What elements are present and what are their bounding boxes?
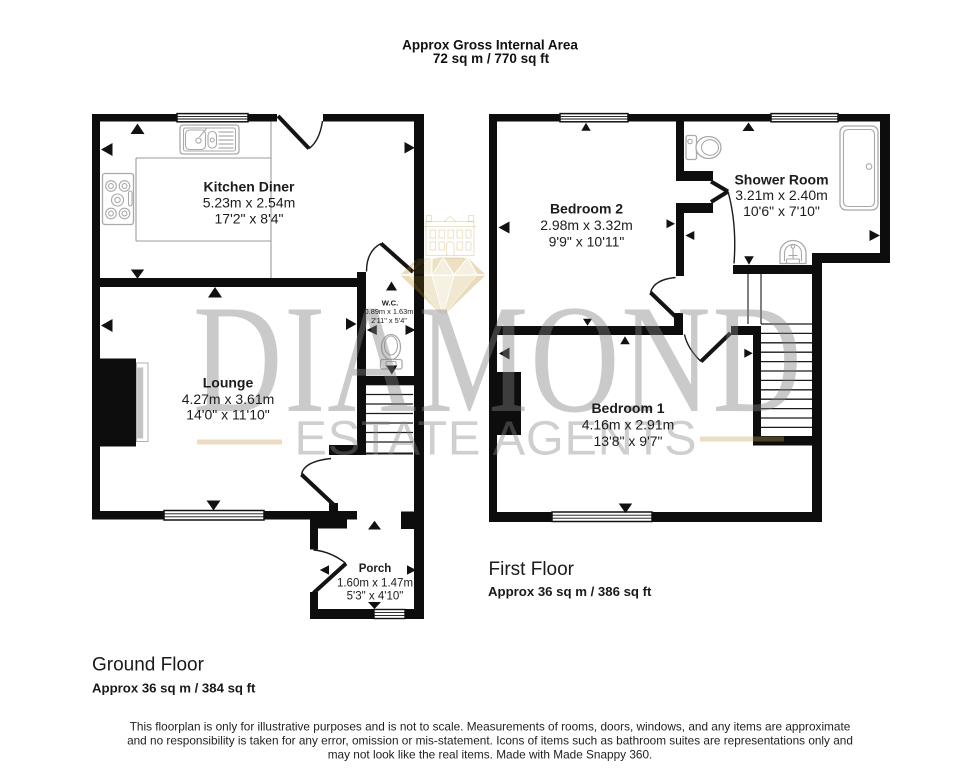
svg-text:Ground Floor: Ground Floor [92,655,205,676]
svg-text:First Floor: First Floor [489,559,575,580]
svg-text:5.23m x 2.54m: 5.23m x 2.54m [203,195,296,211]
svg-text:Kitchen Diner: Kitchen Diner [203,179,295,195]
svg-text:Porch: Porch [359,563,392,575]
svg-text:Approx 36 sq m / 386 sq ft: Approx 36 sq m / 386 sq ft [488,584,652,599]
svg-text:5'3" x 4'10": 5'3" x 4'10" [347,591,404,603]
svg-text:4.27m x 3.61m: 4.27m x 3.61m [182,391,275,407]
svg-text:13'8" x 9'7": 13'8" x 9'7" [594,433,663,449]
svg-text:14'0" x 11'10": 14'0" x 11'10" [186,407,270,423]
svg-text:Bedroom 2: Bedroom 2 [550,201,623,217]
svg-text:2.98m x 3.32m: 2.98m x 3.32m [540,217,633,233]
svg-text:10'6" x 7'10": 10'6" x 7'10" [743,203,820,219]
svg-text:72 sq m / 770 sq ft: 72 sq m / 770 sq ft [433,51,550,66]
svg-text:4.16m x 2.91m: 4.16m x 2.91m [582,417,675,433]
svg-text:17'2" x 8'4": 17'2" x 8'4" [215,211,284,227]
svg-text:0.89m x 1.63m: 0.89m x 1.63m [365,307,414,316]
svg-text:Approx 36 sq m / 384 sq ft: Approx 36 sq m / 384 sq ft [92,681,256,696]
svg-text:3.21m x 2.40m: 3.21m x 2.40m [735,187,828,203]
svg-text:may not look like the real ite: may not look like the real items. Made w… [328,748,653,762]
svg-text:Bedroom 1: Bedroom 1 [591,400,664,416]
svg-text:Lounge: Lounge [203,375,254,391]
svg-text:1.60m x 1.47m: 1.60m x 1.47m [337,578,413,590]
svg-text:and no responsibility is taken: and no responsibility is taken for any e… [127,734,853,748]
svg-text:2'11" x 5'4": 2'11" x 5'4" [371,316,407,325]
svg-text:9'9" x 10'11": 9'9" x 10'11" [549,234,625,250]
svg-text:This floorplan is only for ill: This floorplan is only for illustrative … [130,720,851,734]
svg-text:Shower Room: Shower Room [734,171,828,187]
